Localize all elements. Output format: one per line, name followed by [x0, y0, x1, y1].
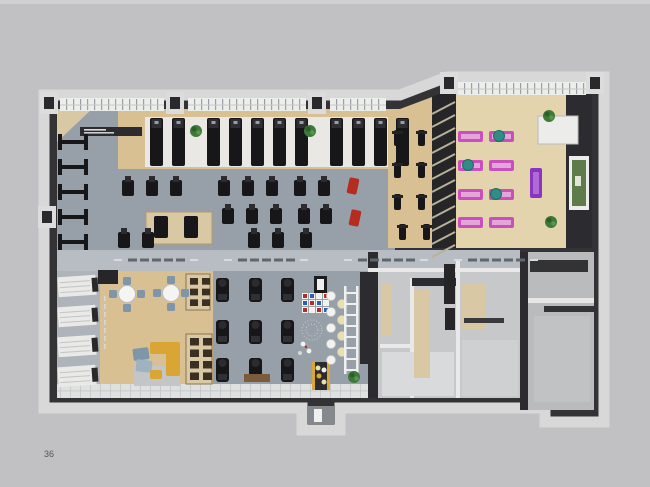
strength-machine-arm	[121, 228, 127, 234]
plant	[348, 371, 360, 383]
sofa-chaise	[166, 342, 180, 376]
exercise-ball	[463, 160, 474, 171]
bookshelf-cubby	[203, 361, 212, 369]
kids-cart	[312, 362, 330, 390]
spin-bike-handlebar	[416, 163, 427, 166]
strength-machine-arm	[245, 176, 251, 182]
plant	[545, 216, 557, 228]
rack-sign-text-line	[84, 129, 106, 131]
climb-hold	[317, 294, 321, 298]
strength-machine	[170, 180, 182, 196]
floor-decal-dash	[104, 304, 106, 309]
yoga-mat-stripe	[461, 134, 480, 139]
floor-marking	[516, 259, 525, 262]
kid-figure-accent	[305, 346, 307, 348]
treadmill-screen	[212, 121, 216, 124]
bookshelf-cubby	[203, 373, 212, 381]
plant	[304, 125, 316, 137]
bookshelf-cubby	[190, 350, 199, 358]
kid-figure	[298, 351, 302, 355]
cafe-chair	[153, 289, 161, 297]
climb-hold	[317, 301, 321, 305]
wardrobe-block2	[445, 308, 455, 330]
window-rail	[188, 105, 306, 106]
floor-marking-light	[344, 259, 352, 261]
utility-left-wall	[520, 252, 528, 410]
strength-machine	[146, 180, 158, 196]
strength-machine-arm	[145, 228, 151, 234]
treadmill-screen	[335, 121, 339, 124]
floor-marking	[140, 259, 149, 262]
strength-machine-arm	[125, 176, 131, 182]
floor-decal-dash	[104, 336, 106, 341]
strength-machine	[266, 180, 278, 196]
window-rail	[330, 105, 386, 106]
bookshelf-cubby	[202, 299, 210, 306]
window-rail	[60, 105, 164, 106]
elliptical-wheel	[284, 321, 292, 329]
purple-mat	[530, 168, 542, 198]
wall-pillar-core	[170, 97, 180, 109]
sofa-ottoman	[150, 370, 162, 379]
floor-marking-light	[420, 259, 428, 261]
changing-left-wall	[368, 252, 378, 398]
cart-ball	[322, 368, 327, 373]
floor-decal-dash	[104, 296, 106, 301]
plant-leaf	[192, 127, 197, 132]
treadmill-screen	[177, 121, 181, 124]
treadmill-screen	[357, 121, 361, 124]
floor-marking-light	[300, 259, 308, 261]
utility-wall-h	[528, 298, 594, 303]
floor-marking	[286, 259, 295, 262]
strength-machine	[248, 232, 260, 248]
platform-machine	[184, 216, 198, 238]
wall-pillar-core	[42, 211, 52, 223]
elliptical-wheel	[252, 321, 260, 329]
ladder-rung	[344, 292, 359, 294]
floor-marking	[164, 259, 173, 262]
treadmill-screen	[379, 121, 383, 124]
strength-machine	[298, 208, 310, 224]
wall-station-post	[84, 209, 88, 225]
wall-pillar-core	[312, 97, 322, 109]
ladder-rail	[356, 286, 359, 374]
cafe-chair	[123, 304, 131, 312]
strength-machine	[272, 232, 284, 248]
floor-marking-light	[454, 259, 462, 261]
wall-station-post	[58, 159, 62, 175]
locker-shelf	[91, 368, 98, 382]
wall-station-post	[84, 134, 88, 150]
bookshelf-cubby	[203, 338, 212, 346]
cart-rail-left	[312, 362, 315, 390]
purple-mat-stripe	[533, 172, 539, 194]
floor-decal-dash	[104, 312, 106, 317]
strength-machine	[270, 208, 282, 224]
strength-machine-arm	[323, 204, 329, 210]
strength-machine	[222, 208, 234, 224]
floor-marking	[358, 259, 367, 262]
yoga-cabinet	[538, 116, 578, 144]
ladder-rung	[344, 369, 359, 371]
elliptical-wheel	[219, 359, 227, 367]
strength-machine-arm	[149, 176, 155, 182]
floor-marking	[370, 259, 379, 262]
platform-machine	[154, 216, 168, 238]
spin-bike-handlebar	[421, 225, 432, 228]
bookshelf-cubby	[203, 350, 212, 358]
strength-machine-arm	[297, 176, 303, 182]
wall-circle-decal	[327, 356, 336, 365]
floor-marking	[128, 259, 137, 262]
spin-bike-handlebar	[416, 131, 427, 134]
elliptical-pedals	[218, 294, 227, 300]
spin-bike-handlebar	[392, 195, 403, 198]
cafe-table	[119, 286, 136, 303]
wardrobe-block1	[444, 264, 455, 304]
floor-marking	[394, 259, 403, 262]
floor-marking-light	[530, 259, 538, 261]
floor-decal-dash	[104, 320, 106, 325]
cafe-chair	[181, 289, 189, 297]
locker-shelf-unit	[57, 335, 98, 358]
changing-floor-white2	[462, 340, 518, 396]
changing-tan-strip3	[462, 284, 486, 330]
elliptical-pedals	[251, 294, 260, 300]
plant-leaf	[196, 130, 200, 134]
treadmill-screen	[401, 121, 405, 124]
floor-marking	[250, 259, 259, 262]
spin-bike-handlebar	[392, 131, 403, 134]
cafe-chair	[167, 276, 175, 284]
locker-shelf-unit	[57, 305, 98, 328]
bookshelf-cubby	[190, 373, 199, 381]
exercise-ball	[491, 189, 502, 200]
document-page: 36	[0, 0, 650, 487]
tile-line	[57, 391, 368, 392]
rack-sign-text-line	[84, 132, 114, 134]
climb-hold	[303, 301, 307, 305]
plant-leaf	[551, 221, 555, 225]
exercise-ball	[494, 131, 505, 142]
treadmill-screen	[278, 121, 282, 124]
floor-plan-render: 36	[0, 0, 650, 487]
elliptical-wheel	[284, 279, 292, 287]
strength-machine-arm	[303, 228, 309, 234]
ladder-rung	[344, 347, 359, 349]
strength-machine-arm	[249, 204, 255, 210]
floor-marking	[468, 259, 477, 262]
changing-tan-strip2	[382, 284, 392, 336]
yoga-mat-stripe	[461, 192, 480, 197]
elliptical-pedals	[283, 336, 292, 342]
spin-bike-handlebar	[392, 163, 403, 166]
climb-hold	[303, 308, 307, 312]
spin-bike-handlebar	[416, 195, 427, 198]
strength-machine-arm	[221, 176, 227, 182]
floor-marking	[480, 259, 489, 262]
wall-station-bar	[58, 165, 88, 169]
strength-machine-arm	[225, 204, 231, 210]
plant	[190, 125, 202, 137]
strength-machine	[218, 180, 230, 196]
changing-tan-strip1	[414, 290, 430, 378]
yoga-mat-stripe	[461, 220, 480, 225]
floor-marking	[504, 259, 513, 262]
treadmill-screen	[234, 121, 238, 124]
cart-ball	[322, 380, 327, 385]
plant-leaf	[310, 130, 314, 134]
locker-shelf	[91, 278, 98, 292]
strength-machine-arm	[269, 176, 275, 182]
floor-marking	[152, 259, 161, 262]
utility-top-band	[530, 260, 588, 272]
wall-pillar-core	[590, 77, 600, 89]
floor-mat	[244, 374, 270, 382]
bookshelf-cubby	[190, 278, 198, 285]
yoga-mat-stripe	[492, 163, 511, 168]
cart-ball	[316, 366, 321, 371]
strength-machine-arm	[275, 228, 281, 234]
utility-rail	[544, 306, 594, 312]
ladder-rung	[344, 314, 359, 316]
floor-marking	[406, 259, 415, 262]
ladder-rung	[344, 303, 359, 305]
rack-sign-board	[80, 127, 142, 136]
kid-figure	[307, 349, 312, 354]
locker-shelf	[91, 308, 98, 322]
elliptical-wheel	[284, 359, 292, 367]
window-rail	[458, 89, 586, 90]
locker-shelf-unit	[57, 365, 98, 388]
bookshelf-cubby	[190, 299, 198, 306]
cafe-table	[163, 285, 180, 302]
floor-decal-dash	[104, 344, 106, 349]
strength-machine	[294, 180, 306, 196]
spin-bike-handlebar	[397, 225, 408, 228]
floor-marking-light	[224, 259, 232, 261]
strength-machine	[320, 208, 332, 224]
bookshelf-cubby	[202, 278, 210, 285]
elliptical-pedals	[283, 294, 292, 300]
plant-leaf	[547, 218, 552, 223]
climb-hold	[324, 301, 328, 305]
wall-station-post	[58, 134, 62, 150]
cafe-chair	[167, 303, 175, 311]
wall-circle-decal	[327, 308, 336, 317]
wall-station-post	[84, 234, 88, 250]
elliptical-wheel	[252, 359, 260, 367]
plant-leaf	[545, 112, 550, 117]
strength-machine	[242, 180, 254, 196]
climb-hold	[310, 308, 314, 312]
floor-decal-dash	[104, 328, 106, 333]
elliptical-wheel	[219, 321, 227, 329]
lounge-shelf-dark	[98, 270, 118, 284]
sofa-pillow2	[135, 359, 152, 373]
wall-circle-decal	[327, 292, 336, 301]
utility-inner-floor	[534, 316, 590, 402]
climb-hold	[310, 301, 314, 305]
floor-marking	[238, 259, 247, 262]
wall-art-highlight	[575, 176, 581, 186]
strength-machine-arm	[321, 176, 327, 182]
wall-circle-decal	[327, 340, 336, 349]
wall-station-post	[58, 184, 62, 200]
page-number: 36	[44, 449, 54, 459]
ladder-rung	[344, 336, 359, 338]
wall-pillar-core	[44, 97, 54, 109]
elliptical-pedals	[283, 374, 292, 380]
floor-marking	[262, 259, 271, 262]
elliptical-pedals	[251, 336, 260, 342]
bookshelf-cubby	[190, 361, 199, 369]
floor-marking-light	[114, 259, 122, 261]
floor-marking	[176, 259, 185, 262]
elliptical-pedals	[218, 374, 227, 380]
changing-wall-h1	[380, 344, 412, 348]
wall-station-bar	[58, 215, 88, 219]
wall-station-post	[84, 159, 88, 175]
strength-machine	[246, 208, 258, 224]
elliptical-wheel	[219, 279, 227, 287]
sofa-pillow1	[132, 347, 150, 361]
wall-station-bar	[58, 240, 88, 244]
strength-machine-arm	[301, 204, 307, 210]
strength-machine	[142, 232, 154, 248]
wall-station-post	[84, 184, 88, 200]
ladder-rung	[344, 325, 359, 327]
plant-leaf	[350, 373, 355, 378]
elliptical-wheel	[252, 279, 260, 287]
strength-machine	[122, 180, 134, 196]
kids-wall-dark	[360, 272, 368, 364]
floor-marking	[274, 259, 283, 262]
wall-station-bar	[58, 190, 88, 194]
vestibule-door	[314, 409, 322, 422]
kids-sign-screen	[317, 279, 324, 290]
ladder-rail	[344, 286, 347, 374]
strength-machine	[318, 180, 330, 196]
treadmill-screen	[155, 121, 159, 124]
floor-marking-light	[190, 259, 198, 261]
hanging-rail	[464, 318, 504, 323]
wall-station-bar	[58, 140, 88, 144]
strength-machine-arm	[251, 228, 257, 234]
locker-shelf	[91, 338, 98, 352]
climb-hold	[317, 308, 321, 312]
bookshelf-cubby	[190, 289, 198, 296]
strength-machine	[300, 232, 312, 248]
cart-ball	[317, 374, 322, 379]
floor-marking	[492, 259, 501, 262]
wall-station-post	[58, 234, 62, 250]
cardio-machines	[216, 278, 294, 382]
floor-marking	[382, 259, 391, 262]
climb-hold	[303, 294, 307, 298]
plant	[543, 110, 555, 122]
plant-leaf	[306, 127, 311, 132]
changing-wall-v2	[456, 260, 460, 398]
bookshelf-cubby	[190, 338, 199, 346]
rack-sign	[80, 127, 142, 136]
strength-machine	[118, 232, 130, 248]
cafe-chair	[123, 277, 131, 285]
treadmill-screen	[256, 121, 260, 124]
treadmill-screen	[300, 121, 304, 124]
cafe-chair	[109, 290, 117, 298]
strength-machine-arm	[273, 204, 279, 210]
bookshelf-cubby	[202, 289, 210, 296]
wall-pillar-core	[444, 77, 454, 89]
elliptical-pedals	[218, 336, 227, 342]
climb-hold	[310, 294, 314, 298]
wall-station-post	[58, 209, 62, 225]
plant-leaf	[354, 376, 358, 380]
cafe-chair	[137, 290, 145, 298]
ladder-rung	[344, 358, 359, 360]
wall-circle-decal	[327, 324, 336, 333]
yoga-mat-stripe	[492, 220, 511, 225]
plant-leaf	[549, 115, 553, 119]
cart-rail-right	[327, 362, 330, 390]
locker-shelf-unit	[57, 275, 98, 298]
kid-figure	[301, 342, 306, 347]
strength-machine-arm	[173, 176, 179, 182]
